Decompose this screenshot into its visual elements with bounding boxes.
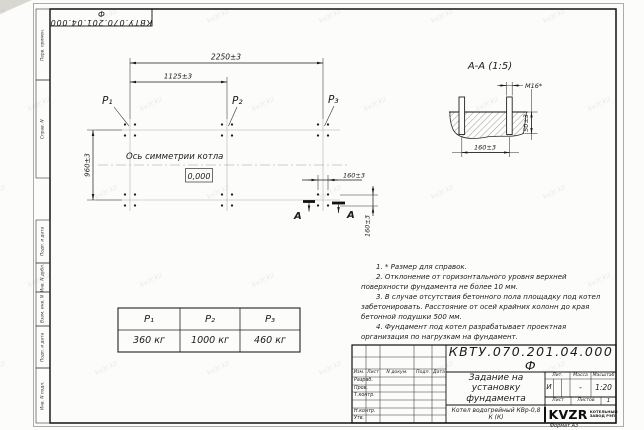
dim-protrusion: 50±3 — [522, 114, 530, 132]
dim-depth: 960±3 — [84, 153, 92, 177]
margin-label-sprav-n: Справ. N — [36, 80, 50, 178]
dim-bolt-spacing-y: 160±3 — [364, 215, 372, 237]
plan-view: 2250±3 1125±3 960±3 P₁ P₂ P₃ Ось симметр… — [84, 53, 379, 238]
col-header-podp: Подп. — [414, 369, 432, 377]
anchor-bolt-left — [459, 97, 465, 135]
margin-label-inv-podl: Инв. N подл. — [36, 368, 50, 423]
note-4: 4. Фундамент под котел разрабатывает про… — [361, 322, 613, 342]
col-header-list: Лист — [366, 369, 380, 377]
sheets-label: Листов — [571, 397, 601, 405]
dim-section-spacing: 160±3 — [474, 144, 496, 152]
logo-caption-line2: ЗАВОД РЭП — [590, 414, 618, 418]
sheet-label: Лист — [545, 397, 571, 405]
elevation-mark: 0,000 — [188, 172, 211, 181]
logo-mark-icon — [544, 407, 546, 422]
dim-bolt-spacing-x: 160±3 — [343, 172, 365, 180]
margin-label-perv-primen: Перв. примен. — [36, 10, 50, 80]
margin-label-vzam-inv: Взам. инв. N — [36, 292, 50, 326]
product-name: Котел водогрейный КВр-0,8 К (К) — [449, 406, 543, 422]
row-label-nkontr: Н.контр. — [354, 408, 382, 415]
technical-notes: 1. * Размер для справок. 2. Отклонение о… — [361, 262, 613, 342]
load-point-3: P₃ — [328, 94, 339, 106]
lit-label: Лит. — [545, 372, 570, 379]
anchor-bolt-right — [507, 97, 513, 135]
section-view: А-А (1:5) M16* 50±3 160±3 — [449, 61, 543, 157]
top-stamp: КВТУ.070.201.04.000 Ф — [50, 9, 152, 26]
doc-title: Задание на установку фундамента — [447, 373, 545, 404]
row-label-utv: Утв. — [354, 415, 382, 423]
load-table-value-p2: 1000 кг — [180, 330, 240, 352]
load-table-value-p1: 360 кг — [118, 330, 180, 352]
dim-half-width: 1125±3 — [164, 73, 192, 81]
row-label-tkontr: Т.контр. — [354, 392, 382, 400]
row-label-razrab: Разраб. — [354, 377, 382, 385]
sheets-value: 1 — [601, 397, 616, 405]
drawing-sheet: { "watermark": {"text": "kvzr.kz"}, "fra… — [0, 0, 644, 430]
col-header-izm: Изм. — [352, 369, 366, 377]
lit-value: И — [545, 379, 553, 397]
load-point-2: P₂ — [232, 95, 243, 107]
col-header-data: Дата — [432, 369, 446, 377]
doc-number: КВТУ.070.201.04.000 Ф — [447, 345, 615, 372]
note-3: 3. В случае отсутствия бетонного пола пл… — [361, 292, 613, 322]
logo-text: KVZR — [548, 407, 587, 422]
section-cut-marks — [303, 202, 345, 214]
margin-label-inv-dubl: Инв. N дубл. — [36, 263, 50, 292]
load-table-header-p1: P₁ — [118, 308, 180, 330]
section-label-left: А — [293, 211, 302, 222]
section-title: А-А (1:5) — [467, 61, 512, 72]
mass-label: Масса — [570, 372, 591, 379]
thread-label: M16* — [525, 82, 543, 90]
scale-label: Масштаб — [591, 372, 616, 379]
mass-value: - — [570, 379, 591, 397]
margin-label-podp-data-2: Подп. и дата — [36, 326, 50, 368]
note-2: 2. Отклонение от горизонтального уровня … — [361, 272, 613, 292]
load-table-header-p3: P₃ — [240, 308, 300, 330]
load-point-1: P₁ — [102, 95, 113, 107]
load-table-header-p2: P₂ — [180, 308, 240, 330]
margin-label-podp-data-1: Подп. и дата — [36, 220, 50, 263]
logo-caption: КОТЕЛЬНЫЙ ЗАВОД РЭП — [590, 410, 618, 419]
format-note: Формат А3 — [538, 423, 590, 430]
company-logo: KVZR КОТЕЛЬНЫЙ ЗАВОД РЭП — [546, 405, 616, 423]
section-label-right: А — [346, 210, 355, 221]
note-1: 1. * Размер для справок. — [361, 262, 613, 272]
row-label-prov: Пров. — [354, 385, 382, 392]
dim-total-width: 2250±3 — [211, 53, 241, 62]
symmetry-axis-label: Ось симметрии котла — [126, 152, 223, 162]
col-header-ndokum: N докум. — [380, 369, 414, 377]
load-table-value-p3: 460 кг — [240, 330, 300, 352]
scale-value: 1:20 — [591, 379, 616, 397]
